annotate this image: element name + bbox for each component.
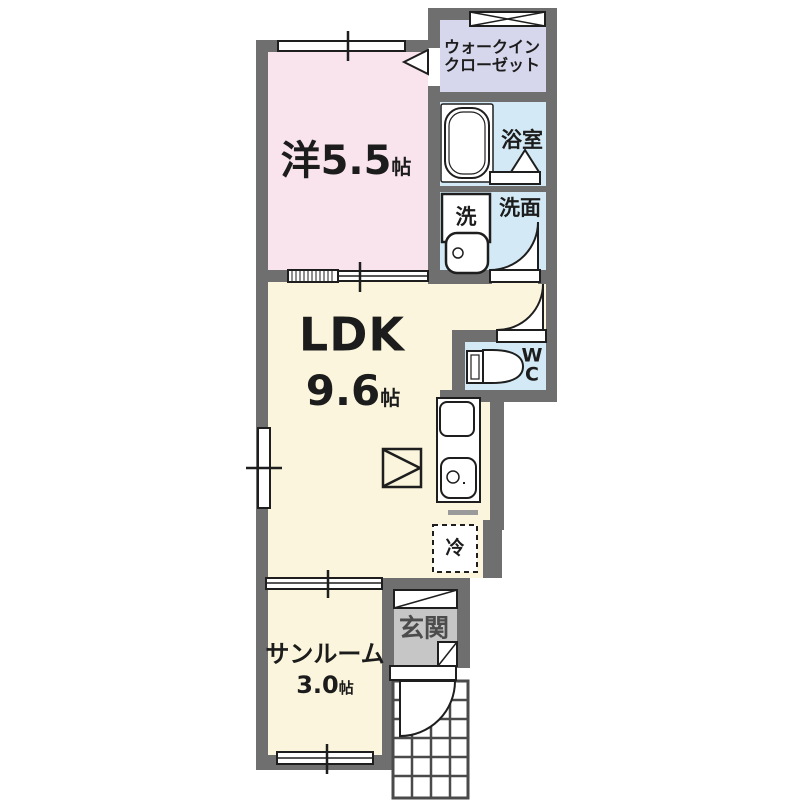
floor-plan: 洋5.5帖 ウォークインクローゼット 浴室 洗 洗面 LDK 9.6帖 WC 冷… — [0, 0, 800, 800]
sink-icon — [441, 458, 476, 498]
washroom-label: 洗面 — [499, 196, 541, 220]
bathroom-label: 浴室 — [501, 128, 543, 152]
entrance-storage-icon — [438, 642, 457, 666]
bedroom-label: 洋5.5帖 — [281, 138, 412, 184]
closet-opening — [428, 48, 440, 86]
sunroom-size-label: 3.0帖 — [296, 672, 354, 700]
laundry-label: 洗 — [456, 205, 477, 229]
counter-edge — [448, 510, 478, 515]
ldk-size-label: 9.6帖 — [306, 367, 400, 415]
entrance-label: 玄関 — [399, 615, 449, 644]
shoe-cabinet-icon — [394, 590, 457, 608]
bath-threshold — [490, 172, 540, 184]
toilet-icon — [467, 350, 523, 383]
washbasin-icon — [446, 233, 488, 273]
stove-icon — [440, 402, 474, 436]
closet-hanger-rack — [470, 12, 545, 26]
fridge-label: 冷 — [445, 538, 464, 560]
wc-label: WC — [522, 346, 543, 383]
bathtub-icon — [441, 104, 493, 182]
ldk-label: LDK — [299, 309, 405, 362]
sunroom-label: サンルーム — [265, 641, 384, 669]
closet-label: ウォークインクローゼット — [444, 39, 540, 76]
